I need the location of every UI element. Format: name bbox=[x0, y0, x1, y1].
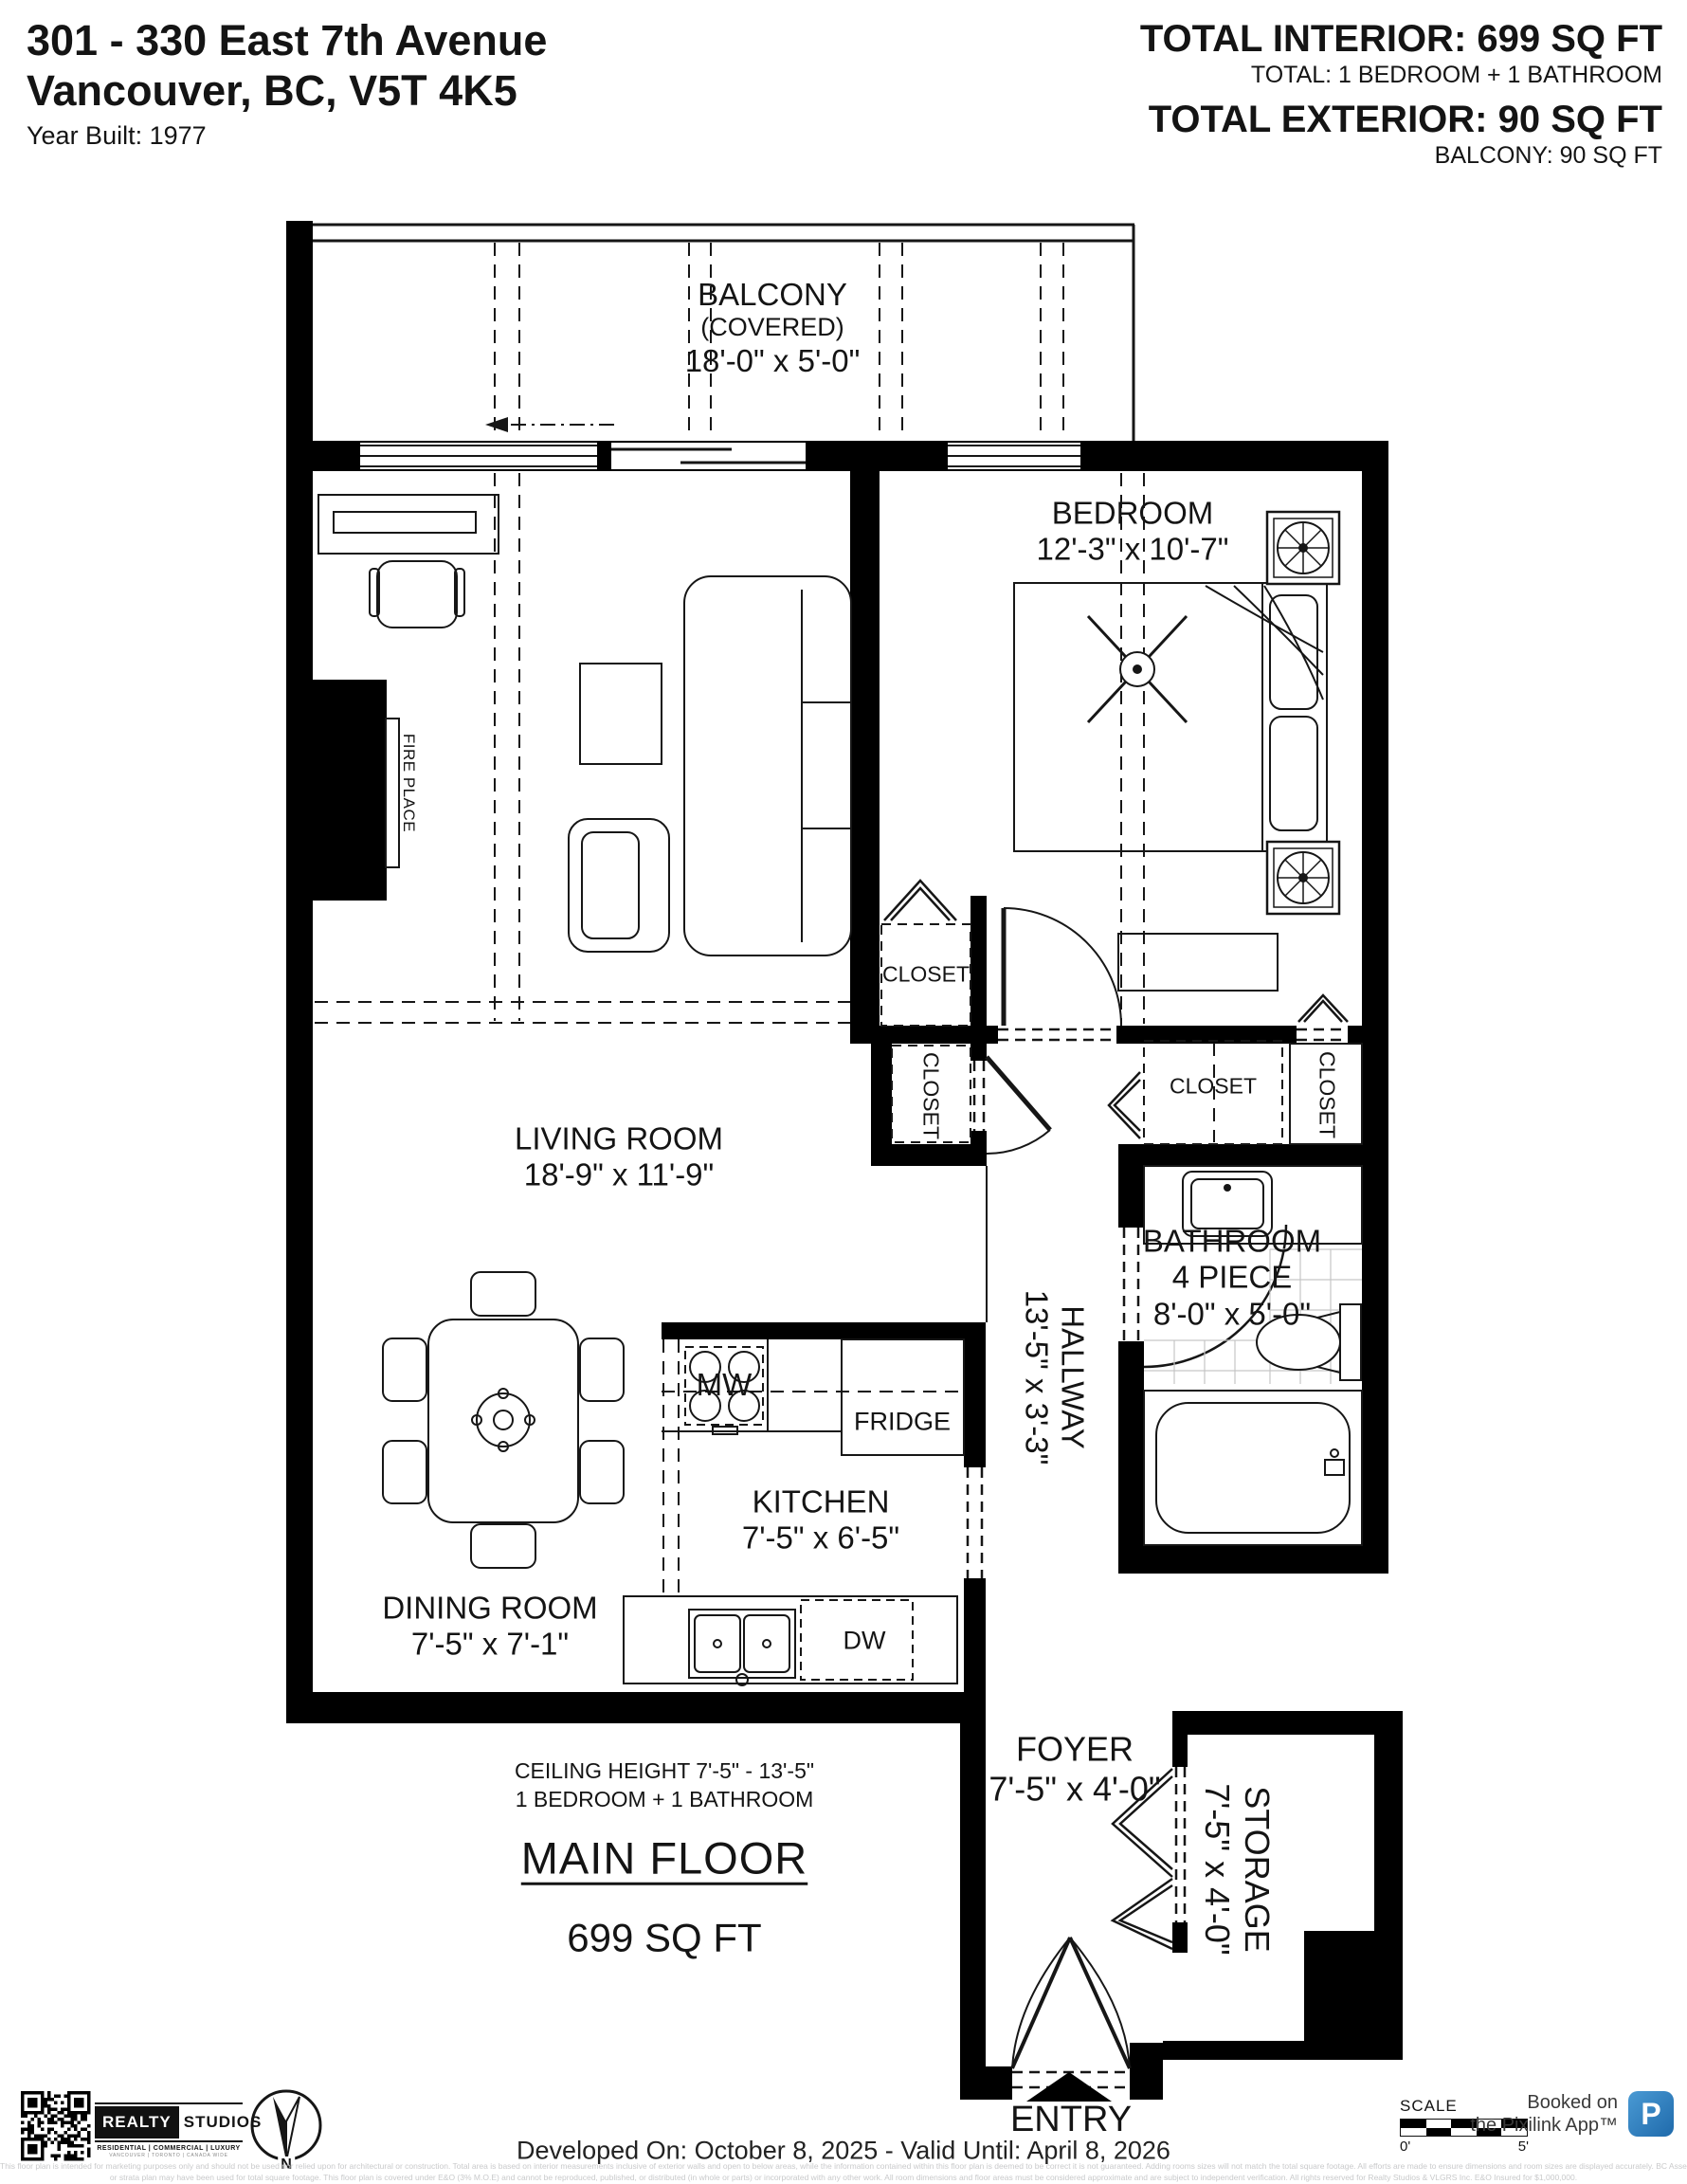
balcony-dims: 18'-0" x 5'-0" bbox=[685, 343, 861, 379]
bathtub-icon bbox=[1144, 1391, 1362, 1545]
slider-direction-arrow-icon bbox=[485, 417, 614, 432]
windows bbox=[360, 417, 1080, 469]
speaker-icon bbox=[1267, 842, 1339, 914]
living-room-label: LIVING ROOM 18'-9" x 11'-9" bbox=[515, 1121, 723, 1194]
coffee-table-icon bbox=[580, 664, 662, 764]
bedroom-label: BEDROOM 12'-3" x 10'-7" bbox=[1037, 496, 1229, 569]
dishwasher-label: DW bbox=[843, 1626, 886, 1655]
floor-area: 699 SQ FT bbox=[567, 1916, 761, 1962]
logo-rule bbox=[95, 2102, 243, 2104]
hallway-label: HALLWAY 13'-5" x 3'-3" bbox=[1018, 1290, 1091, 1465]
balcony-note: (COVERED) bbox=[685, 313, 861, 342]
pixilink-line1: Booked on bbox=[1470, 2091, 1618, 2114]
pixilink-credit: Booked on the Pixilink App™ P bbox=[1470, 2091, 1674, 2137]
fireplace-label: FIRE PLACE bbox=[399, 734, 418, 832]
brand-name-left: REALTY bbox=[95, 2106, 179, 2138]
bathroom-label: BATHROOM 4 PIECE 8'-0" x 5'-0" bbox=[1143, 1224, 1321, 1333]
closet-label-hall-right: CLOSET bbox=[1170, 1074, 1257, 1100]
foyer-label: FOYER 7'-5" x 4'-0" bbox=[989, 1729, 1160, 1809]
brand-tagline: RESIDENTIAL | COMMERCIAL | LUXURY bbox=[95, 2145, 243, 2152]
floor-name: MAIN FLOOR bbox=[521, 1833, 807, 1885]
brand-name-right: STUDIOS bbox=[179, 2113, 263, 2132]
ceiling-height-note: CEILING HEIGHT 7'-5" - 13'-5" bbox=[515, 1757, 814, 1786]
dining-room-label: DINING ROOM 7'-5" x 7'-1" bbox=[382, 1591, 597, 1664]
floor-plan-page: 301 - 330 East 7th Avenue Vancouver, BC,… bbox=[0, 0, 1687, 2184]
entry-label: ENTRY bbox=[1010, 2099, 1132, 2140]
closet-label-bedroom: CLOSET bbox=[882, 962, 970, 988]
desk-icon bbox=[318, 495, 499, 628]
scale-end: 5' bbox=[1518, 2138, 1529, 2155]
header-address-block: 301 - 330 East 7th Avenue Vancouver, BC,… bbox=[27, 15, 547, 151]
balcony-name: BALCONY bbox=[685, 277, 861, 313]
scale-start: 0' bbox=[1400, 2138, 1410, 2155]
dining-table-icon bbox=[383, 1272, 624, 1568]
logo-rule bbox=[95, 2140, 243, 2142]
total-interior: TOTAL INTERIOR: 699 SQ FT bbox=[1140, 17, 1662, 61]
realty-studios-logo: REALTY STUDIOS RESIDENTIAL | COMMERCIAL … bbox=[95, 2101, 243, 2158]
kitchen-sink-icon bbox=[624, 1596, 957, 1685]
kitchen-label: KITCHEN 7'-5" x 6'-5" bbox=[742, 1484, 899, 1557]
storage-label: STORAGE 7'-5" x 4'-0" bbox=[1197, 1783, 1277, 1955]
total-interior-sub: TOTAL: 1 BEDROOM + 1 BATHROOM bbox=[1140, 61, 1662, 90]
total-exterior-sub: BALCONY: 90 SQ FT bbox=[1140, 141, 1662, 171]
bed-icon bbox=[1014, 583, 1327, 851]
closet-label-hall-left: CLOSET bbox=[918, 1052, 944, 1139]
brand-cities: VANCOUVER | TORONTO | CANADA WIDE bbox=[95, 2153, 243, 2158]
address-line2: Vancouver, BC, V5T 4K5 bbox=[27, 65, 547, 116]
qr-code-icon bbox=[21, 2091, 91, 2161]
header-totals-block: TOTAL INTERIOR: 699 SQ FT TOTAL: 1 BEDRO… bbox=[1140, 17, 1662, 172]
configuration-note: 1 BEDROOM + 1 BATHROOM bbox=[515, 1786, 814, 1814]
sofa-icon bbox=[684, 576, 851, 955]
address-line1: 301 - 330 East 7th Avenue bbox=[27, 15, 547, 65]
disclaimer-line2: or strata plan may have been used for to… bbox=[0, 2173, 1687, 2182]
bench-icon bbox=[1118, 934, 1278, 991]
year-built: Year Built: 1977 bbox=[27, 121, 547, 151]
compass-icon bbox=[252, 2091, 320, 2161]
pixilink-line2: the Pixilink App™ bbox=[1470, 2114, 1618, 2137]
summary-notes: CEILING HEIGHT 7'-5" - 13'-5" 1 BEDROOM … bbox=[515, 1757, 814, 1814]
armchair-icon bbox=[569, 819, 669, 952]
fridge-label: FRIDGE bbox=[854, 1407, 951, 1436]
balcony-label: BALCONY (COVERED) 18'-0" x 5'-0" bbox=[685, 277, 861, 379]
microwave-label: MW bbox=[697, 1367, 753, 1403]
ceiling-fan-icon bbox=[1088, 616, 1187, 722]
total-exterior: TOTAL EXTERIOR: 90 SQ FT bbox=[1140, 98, 1662, 141]
pixilink-logo-icon: P bbox=[1628, 2091, 1674, 2137]
disclaimer-line1: This floor plan is intended for marketin… bbox=[0, 2161, 1687, 2171]
fireplace-icon bbox=[386, 719, 399, 867]
closet-label-corner: CLOSET bbox=[1315, 1051, 1340, 1138]
speaker-icon bbox=[1267, 512, 1339, 584]
fridge-icon bbox=[842, 1339, 964, 1455]
